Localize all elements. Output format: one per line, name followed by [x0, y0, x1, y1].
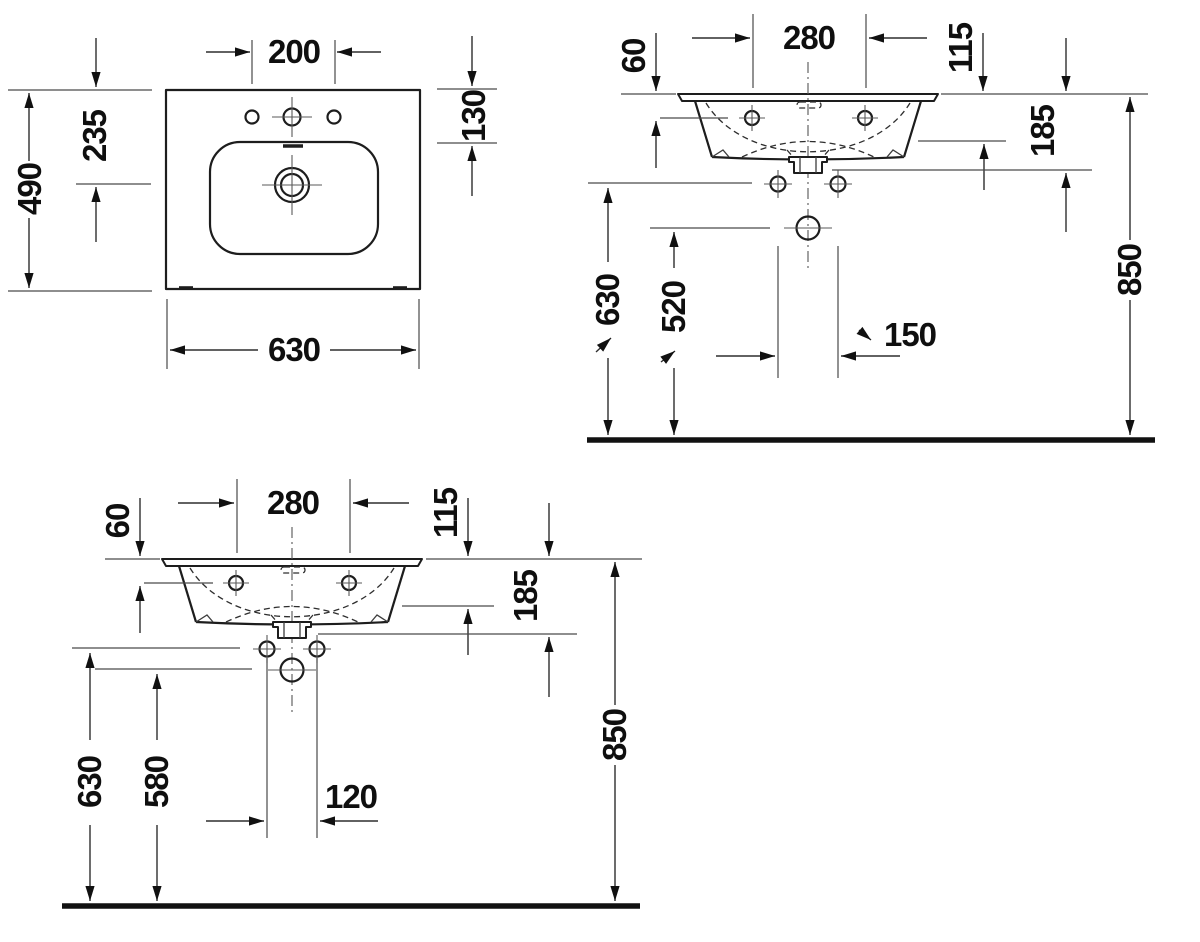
dim-hole-spacing: 200 — [206, 33, 381, 84]
dim-rim-height: 850 — [1111, 97, 1148, 435]
dim-label-fixing-spacing: 280 — [267, 484, 319, 521]
dim-rim-to-bowl: 130 — [437, 36, 497, 196]
plan-inner-bowl — [210, 142, 378, 254]
dim-supply-spacing: 150 — [716, 246, 936, 378]
dim-fixing-spacing: 280 — [178, 479, 409, 553]
dim-label-rim-to-bowl-bottom: 115 — [427, 487, 464, 538]
dim-fixing-spacing: 280 — [692, 14, 927, 88]
plan-faucet-hole-left — [246, 111, 259, 124]
dim-label-rim-to-outlet: 185 — [1024, 104, 1061, 157]
dim-label-rim-to-hole: 60 — [615, 39, 652, 74]
dim-rim-to-bowl-bottom: 115 — [918, 22, 1006, 190]
dim-label-depth-overall: 490 — [11, 163, 48, 215]
plan-view: 200 130 235 490 — [8, 33, 497, 369]
drain-pipe — [273, 622, 311, 638]
dim-rim-height: 850 — [596, 562, 633, 901]
foot-left — [712, 150, 729, 157]
foot-right — [371, 615, 388, 622]
plan-basin-outline — [166, 90, 420, 289]
plan-faucet-hole-right — [328, 111, 341, 124]
drain-pipe — [789, 157, 827, 173]
technical-drawing-sheet: 200 130 235 490 — [0, 0, 1200, 942]
leader-arrow-icon — [661, 351, 675, 362]
dim-label-waste-height: 580 — [138, 756, 175, 808]
foot-right — [887, 150, 904, 157]
dim-label-waste-height: 520 — [655, 281, 692, 333]
dim-waste-height: 580 — [95, 669, 252, 901]
washbasin-dimension-drawing: 200 130 235 490 — [0, 0, 1200, 942]
dim-label-width-overall: 630 — [268, 331, 320, 368]
dim-rim-to-outlet: 185 — [832, 38, 1148, 232]
dim-label-rim-height: 850 — [596, 709, 633, 761]
leader-arrow-icon — [596, 338, 611, 352]
front-view-120: 280 60 115 185 850 — [62, 479, 642, 906]
dim-rim-to-outlet: 185 — [318, 503, 642, 697]
front-view-150: 280 60 115 185 850 — [587, 14, 1155, 440]
dim-width-overall: 630 — [167, 299, 419, 369]
dim-label-rim-height: 850 — [1111, 244, 1148, 296]
plan-faucet-crosshair — [272, 97, 312, 137]
dim-waste-height: 520 — [650, 228, 770, 435]
dim-label-fixing-spacing: 280 — [783, 19, 835, 56]
overflow-slot — [281, 567, 305, 573]
dim-label-rim-to-bowl-bottom: 115 — [942, 22, 979, 73]
dim-label-rim-to-hole: 60 — [99, 504, 136, 539]
leader-arrow-icon — [859, 330, 871, 340]
overflow-slot — [797, 102, 821, 108]
dim-label-hole-spacing: 200 — [268, 33, 320, 70]
dim-label-supply-spacing: 120 — [325, 778, 377, 815]
dim-label-rim-to-outlet: 185 — [507, 569, 544, 622]
plan-drain-crosshair — [262, 155, 322, 215]
dim-rim-to-drain: 235 — [76, 38, 151, 242]
dim-label-supply-spacing: 150 — [884, 316, 936, 353]
dim-rim-to-bowl-bottom: 115 — [402, 487, 494, 655]
dim-label-supply-height: 630 — [71, 756, 108, 808]
foot-left — [196, 615, 213, 622]
dim-label-rim-to-bowl: 130 — [455, 90, 492, 142]
dim-label-rim-to-drain: 235 — [76, 109, 113, 162]
dim-label-supply-height: 630 — [589, 274, 626, 326]
